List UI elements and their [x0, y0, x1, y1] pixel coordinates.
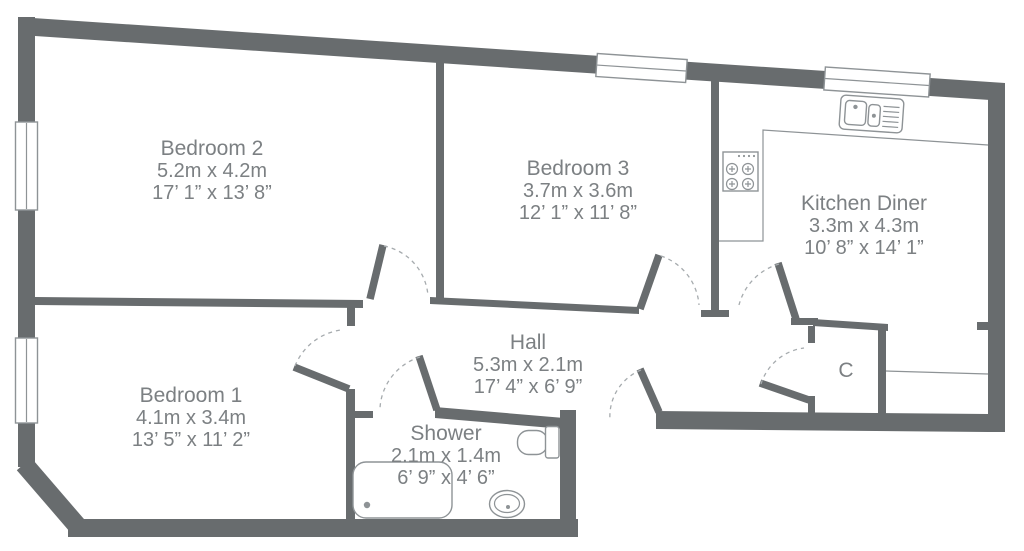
bedroom2-bedroom3-divider — [436, 60, 444, 303]
kitchen-diner-metric-label: 3.3m x 4.3m — [809, 215, 919, 237]
bedroom3-bottom-wall — [430, 297, 639, 314]
bedroom2-metric-label: 5.2m x 4.2m — [157, 160, 267, 182]
bedroom1-name-label: Bedroom 1 — [140, 384, 243, 407]
hob-icon — [723, 152, 758, 191]
hall-name-label: Hall — [510, 331, 546, 354]
kitchen-diner-imperial-label: 10’ 8” x 14’ 1” — [804, 237, 924, 259]
floor-plan-page: Bedroom 2 5.2m x 4.2m 17’ 1” x 13’ 8” Be… — [0, 0, 1024, 551]
bedroom3-kitchen-divider-foot — [701, 310, 729, 317]
bedroom3-imperial-label: 12’ 1” x 11’ 8” — [519, 202, 637, 224]
right-wall-stub — [977, 322, 988, 330]
cupboard-label: C — [838, 359, 853, 382]
shower-door-swing-arc — [380, 357, 420, 408]
bedroom2-name-label: Bedroom 2 — [161, 137, 264, 160]
front-door-leaf — [640, 369, 659, 412]
front-door-swing-arc — [610, 370, 641, 420]
kitchen-sink-icon — [839, 95, 904, 133]
kitchen-diner-name-label: Kitchen Diner — [801, 192, 927, 215]
right-wall — [988, 86, 1005, 432]
shower-door-leaf — [419, 356, 437, 410]
cupboard-right-wall — [878, 324, 886, 414]
bedroom3-metric-label: 3.7m x 3.6m — [523, 180, 633, 202]
cupboard-stub-top — [808, 326, 815, 343]
bedroom2-door-swing-arc — [384, 246, 428, 296]
bedroom3-kitchen-divider — [711, 64, 719, 312]
shower-metric-label: 2.1m x 1.4m — [391, 445, 501, 467]
window-icon — [824, 67, 930, 97]
basin-icon — [490, 491, 525, 518]
bottom-wall — [68, 519, 578, 537]
hall-bottom-wall — [656, 411, 988, 432]
bedroom2-imperial-label: 17’ 1” x 13’ 8” — [152, 182, 272, 204]
counter-edge — [886, 371, 988, 374]
cupboard-door-swing-arc — [761, 348, 804, 384]
toilet-icon — [518, 427, 560, 459]
hall-metric-label: 5.3m x 2.1m — [473, 354, 583, 376]
shower-imperial-label: 6’ 9” x 4’ 6” — [397, 467, 494, 489]
cupboard-top-wall — [813, 319, 888, 331]
window-icon — [16, 338, 38, 423]
bedroom1-metric-label: 4.1m x 3.4m — [136, 407, 246, 429]
bedroom1-door-swing-arc — [295, 330, 341, 366]
bedroom3-door-swing-arc — [661, 256, 699, 305]
bedroom3-door-leaf — [640, 255, 659, 309]
window-icon — [16, 122, 38, 210]
cupboard-door-leaf — [760, 383, 809, 400]
hall-imperial-label: 17’ 4” x 6’ 9” — [474, 376, 583, 398]
bedroom2-bedroom1-divider — [35, 297, 363, 308]
bedroom2-door-leaf — [370, 245, 383, 299]
window-icon — [596, 54, 687, 83]
bedroom1-door-jamb — [347, 306, 355, 326]
bedroom1-imperial-label: 13’ 5” x 11’ 2” — [132, 429, 250, 451]
kitchen-door-leaf — [778, 263, 796, 319]
floor-plan: Bedroom 2 5.2m x 4.2m 17’ 1” x 13’ 8” Be… — [0, 0, 1024, 551]
shower-name-label: Shower — [410, 422, 481, 445]
walls — [18, 17, 1005, 537]
bedroom3-name-label: Bedroom 3 — [527, 157, 630, 180]
kitchen-door-swing-arc — [739, 264, 779, 305]
bedroom1-door-leaf — [294, 367, 349, 389]
